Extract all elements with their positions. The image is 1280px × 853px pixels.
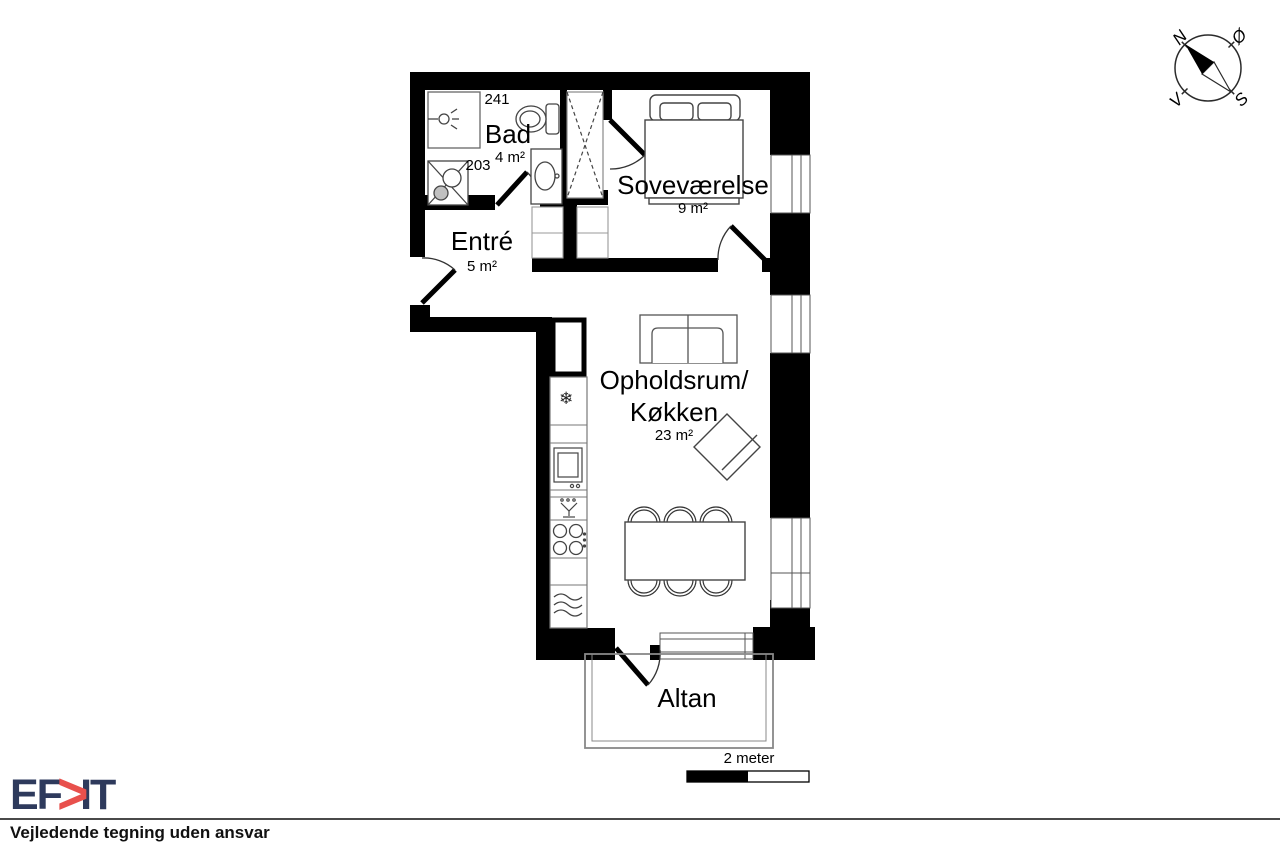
- window-balcony: [660, 633, 753, 659]
- room-label-opholdsrum: Opholdsrum/: [592, 366, 756, 395]
- kitchen-counter: [550, 377, 587, 628]
- logo-prefix: EF: [10, 771, 61, 819]
- room-label-sovevaerelse: Soveværelse: [613, 171, 773, 200]
- window-living-upper: [771, 295, 810, 353]
- tall-cabinet: [553, 320, 584, 374]
- logo-chevron-icon: >: [57, 766, 86, 824]
- floor-plan-page: 241 Bad 4 m² 203 Entré 5 m² Soveværelse …: [0, 0, 1280, 853]
- wardrobe: [567, 92, 603, 198]
- room-label-bad: Bad: [476, 120, 540, 149]
- dining-table: [625, 522, 745, 580]
- wall-kitchen-left: [536, 317, 551, 628]
- scale-bar: [687, 771, 809, 782]
- scale-bar-label: 2 meter: [690, 751, 808, 768]
- room-number-203: 203: [460, 158, 496, 175]
- window-living-lower: [771, 518, 810, 608]
- room-number-241: 241: [480, 92, 514, 109]
- room-area-entre: 5 m²: [430, 259, 534, 276]
- wall-cabinet-divider: [563, 205, 577, 258]
- kitchen-cabinets: [550, 320, 587, 628]
- company-logo: EF>IT: [10, 774, 114, 817]
- bedroom-door-top: [610, 120, 645, 169]
- room-area-opholdsrum: 23 m²: [592, 428, 756, 445]
- room-label-altan: Altan: [627, 684, 747, 713]
- wall-top: [410, 72, 810, 90]
- footer-divider: [0, 818, 1280, 820]
- wall-bottom-right-corner: [753, 627, 815, 660]
- bath-sink: [531, 149, 562, 204]
- freezer-icon: ❄: [559, 390, 573, 407]
- shower: [428, 92, 480, 148]
- sofa: [640, 315, 737, 363]
- disclaimer-text: Vejledende tegning uden ansvar: [10, 823, 270, 843]
- bedroom-door-bottom: [718, 226, 765, 260]
- window-bedroom: [771, 155, 810, 213]
- room-label-entre: Entré: [430, 227, 534, 256]
- wall-entre-bottom: [410, 317, 552, 332]
- wall-bottom-left: [536, 628, 615, 660]
- wall-right-seg3: [770, 353, 810, 518]
- wall-right-seg2: [770, 213, 810, 295]
- wall-left-upper: [410, 72, 425, 257]
- wall-bedroom-bottom: [532, 258, 718, 272]
- room-label-kokken: Køkken: [592, 398, 756, 427]
- wall-right-seg1: [770, 72, 810, 155]
- room-area-sovevaerelse: 9 m²: [613, 201, 773, 218]
- wall-wardrobe-right: [603, 90, 612, 120]
- wall-balcony-door-post: [650, 645, 660, 660]
